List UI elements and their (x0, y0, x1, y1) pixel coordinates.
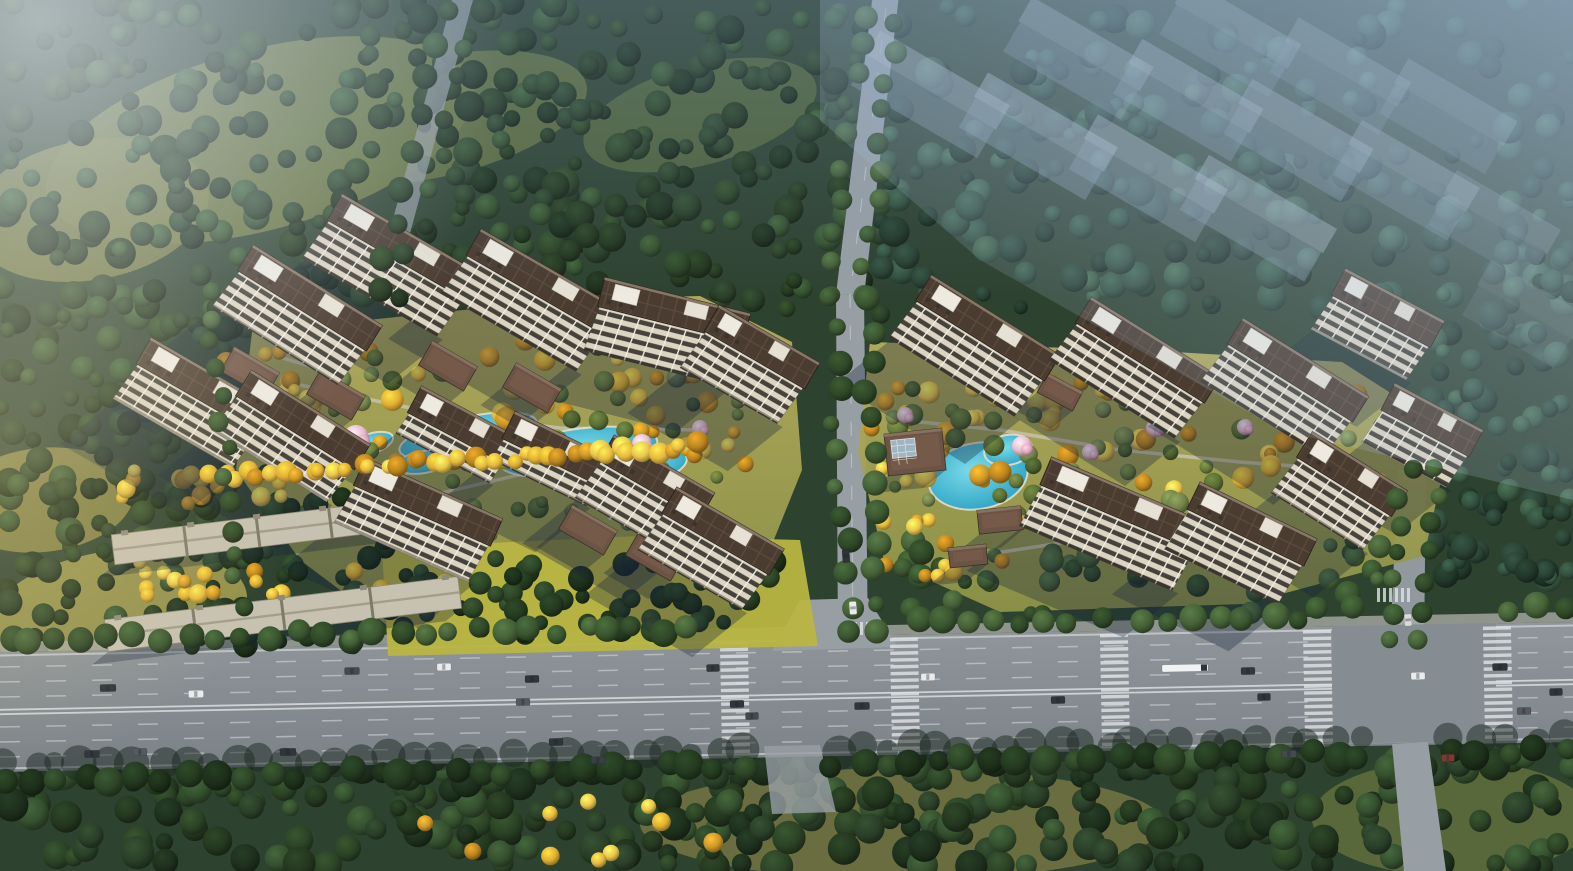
tree (687, 431, 709, 453)
tree (446, 758, 471, 783)
tree (829, 318, 846, 335)
vehicle (516, 698, 530, 705)
tree (1289, 611, 1307, 629)
tree (1523, 592, 1550, 619)
tree (1442, 559, 1457, 574)
tree (1262, 602, 1289, 629)
tree (772, 821, 805, 854)
tree (1154, 744, 1186, 776)
vehicle (730, 700, 744, 707)
tree (415, 624, 437, 646)
tree (907, 606, 933, 632)
tree (1130, 609, 1154, 633)
tree (78, 822, 104, 848)
tree (1335, 786, 1354, 805)
tree (1281, 781, 1299, 799)
tree (620, 616, 640, 636)
tree (1177, 799, 1195, 817)
tree (282, 800, 299, 817)
tree (521, 555, 542, 576)
tree (1194, 741, 1223, 770)
tree (863, 351, 886, 374)
vehicle (1257, 693, 1270, 700)
tree (547, 625, 566, 644)
vehicle (849, 601, 857, 614)
tree (310, 622, 336, 648)
tree (1032, 610, 1055, 633)
tree (1308, 825, 1339, 856)
clubhouse (884, 428, 946, 476)
tree (918, 569, 931, 582)
tree (283, 768, 305, 790)
tree (922, 493, 935, 506)
tree (989, 825, 1017, 853)
tree (486, 791, 514, 819)
tree (487, 586, 504, 603)
tree (1031, 745, 1061, 775)
tree (44, 769, 67, 792)
tree (1092, 839, 1118, 865)
tree (357, 618, 385, 646)
tree (861, 407, 882, 428)
tree (1469, 810, 1491, 832)
tree (18, 769, 45, 796)
tree (586, 811, 606, 831)
tree (1056, 613, 1076, 633)
tree (203, 826, 233, 856)
tree (462, 597, 483, 618)
tree (390, 800, 407, 817)
tree (989, 461, 1012, 484)
tree (486, 453, 503, 470)
tree (1158, 613, 1177, 632)
tree (1295, 793, 1323, 821)
tree (862, 470, 887, 495)
tree (929, 606, 957, 634)
tree (1451, 533, 1478, 560)
tree (504, 567, 522, 585)
tree (922, 513, 936, 527)
garden-pavilion (977, 506, 1023, 534)
garden-pavilion (948, 544, 988, 568)
tree (580, 794, 596, 810)
tree (1238, 745, 1267, 774)
tree (837, 620, 860, 643)
tree (827, 479, 843, 495)
tree (1109, 743, 1136, 770)
tree (257, 626, 282, 651)
tree (548, 448, 567, 467)
tree (1421, 541, 1440, 560)
tree (985, 783, 1015, 813)
tree (622, 759, 643, 780)
tree (180, 808, 206, 834)
tree (819, 756, 841, 778)
tree (716, 789, 743, 816)
tree (589, 411, 609, 431)
vehicle (706, 664, 719, 671)
tree (1000, 746, 1030, 776)
tree (515, 616, 540, 641)
vehicle (921, 673, 935, 680)
tree (1344, 746, 1368, 770)
tree (1459, 740, 1489, 770)
tree (918, 791, 939, 812)
tree (1383, 604, 1404, 625)
tree (942, 802, 972, 832)
tree (671, 438, 686, 453)
tree (1135, 474, 1153, 492)
tree (1502, 792, 1533, 823)
tree (392, 621, 416, 645)
tree (1146, 817, 1178, 849)
tree (412, 760, 437, 785)
vehicle (1411, 672, 1425, 679)
tree (1389, 544, 1405, 560)
tree (830, 506, 851, 527)
tree (1461, 491, 1480, 510)
tree (337, 463, 351, 477)
rendering-canvas (0, 0, 1573, 871)
crosswalk (1483, 626, 1513, 739)
tree (1021, 444, 1033, 456)
tree (456, 824, 476, 844)
tree (1530, 781, 1558, 809)
tree (1269, 820, 1299, 850)
tree (1301, 739, 1325, 763)
tree (1383, 569, 1401, 587)
tree (947, 743, 975, 771)
tree (616, 422, 634, 440)
tree (864, 619, 888, 643)
tree (490, 765, 512, 787)
tree (530, 759, 551, 780)
tree (1025, 458, 1042, 475)
tree (1386, 488, 1408, 510)
tree (1266, 744, 1296, 774)
tree (121, 762, 149, 790)
tree (652, 812, 671, 831)
tree (1009, 473, 1024, 488)
tree (1341, 595, 1365, 619)
tree (1515, 559, 1539, 583)
tree (1179, 604, 1207, 632)
tree (908, 830, 940, 862)
tree (231, 767, 255, 791)
tree (1363, 826, 1392, 855)
tree (828, 832, 861, 865)
vehicle (842, 549, 850, 562)
tree (1391, 516, 1411, 536)
tree (977, 747, 1004, 774)
tree (929, 751, 949, 771)
tree (642, 831, 663, 852)
tree (894, 803, 915, 824)
tree (622, 779, 646, 803)
vehicle (437, 663, 451, 670)
tree (1485, 509, 1502, 526)
tree (1381, 631, 1398, 648)
tree (438, 623, 457, 642)
tree (1547, 833, 1569, 855)
tree (833, 560, 857, 584)
tree (826, 439, 848, 461)
tree (852, 749, 880, 777)
tree (854, 814, 884, 844)
tree (1553, 503, 1571, 521)
tree (340, 756, 366, 782)
tree (417, 815, 433, 831)
tree (239, 793, 265, 819)
vehicle (280, 748, 296, 756)
tree (829, 376, 854, 401)
tree (1415, 573, 1434, 592)
vehicle (1241, 667, 1255, 674)
tree (895, 750, 922, 777)
tree (867, 531, 892, 556)
tree (1498, 602, 1518, 622)
tree (1408, 630, 1428, 650)
vehicle (745, 712, 758, 719)
tree (156, 833, 173, 850)
tree (1356, 793, 1381, 818)
tree (674, 615, 697, 638)
tree (540, 593, 564, 617)
tree (861, 556, 885, 580)
tree (541, 847, 560, 866)
tree (334, 783, 355, 804)
tree (1520, 735, 1547, 762)
tree (365, 818, 386, 839)
tree (703, 833, 723, 853)
tree (148, 770, 171, 793)
vehicle (591, 756, 605, 763)
tree (1500, 744, 1521, 765)
tree (176, 760, 204, 788)
tree (838, 527, 863, 552)
tree (863, 322, 886, 345)
tree (387, 456, 407, 476)
tree (262, 762, 286, 786)
tree (594, 616, 620, 642)
tree (1077, 744, 1106, 773)
vehicle (1051, 696, 1065, 703)
vehicle (525, 675, 539, 682)
tree (778, 300, 795, 317)
tree (464, 843, 481, 860)
tree (862, 776, 895, 809)
tree (852, 379, 877, 404)
tree (701, 758, 722, 779)
tree (650, 619, 678, 647)
tree (958, 611, 980, 633)
tree (383, 758, 415, 790)
tree (1306, 597, 1328, 619)
tree (1555, 529, 1572, 546)
aerial-site-rendering (0, 0, 1573, 871)
vehicle (1281, 750, 1296, 757)
tree (154, 798, 183, 827)
tree (1412, 602, 1433, 623)
tree (1420, 512, 1441, 533)
tree (685, 803, 705, 823)
tree (673, 749, 704, 780)
vehicle (1492, 663, 1507, 670)
vehicle (854, 702, 869, 709)
tree (969, 464, 991, 486)
tree (983, 610, 1004, 631)
tree (1011, 615, 1029, 633)
tree (710, 471, 723, 484)
vehicle (1517, 707, 1531, 714)
tree (50, 801, 82, 833)
vehicle (549, 738, 563, 745)
tree (542, 806, 557, 821)
tree (1208, 783, 1241, 816)
tree (750, 816, 775, 841)
tree (121, 836, 155, 870)
tree (865, 442, 887, 464)
tree (1081, 781, 1101, 801)
tree (556, 820, 576, 840)
tree (552, 787, 574, 809)
tree (734, 756, 758, 780)
vehicle (1549, 688, 1562, 695)
tree (1229, 607, 1253, 631)
tree (310, 464, 324, 478)
tree (202, 760, 232, 790)
tree (334, 835, 361, 862)
tree (114, 796, 142, 824)
truck (1162, 664, 1208, 672)
tree (94, 767, 124, 797)
vehicle (344, 667, 359, 674)
tree (1504, 844, 1532, 871)
tree (828, 351, 853, 376)
tree (305, 785, 328, 808)
tree (641, 799, 656, 814)
tree (1370, 572, 1384, 586)
crosswalk (1303, 630, 1333, 743)
vehicle (133, 748, 147, 755)
tree (1043, 819, 1065, 841)
tree (563, 410, 581, 428)
tree (381, 388, 404, 411)
skylight (891, 438, 917, 458)
tree (591, 852, 606, 867)
vehicle (1404, 614, 1412, 626)
tree (288, 619, 311, 642)
tree (493, 618, 520, 645)
tree (865, 500, 889, 524)
tree (909, 539, 935, 565)
tree (449, 450, 466, 467)
tree (410, 450, 427, 467)
tree (487, 550, 504, 567)
tree (311, 762, 332, 783)
vehicle (1441, 754, 1454, 761)
tree (360, 459, 374, 473)
tree (868, 596, 884, 612)
tree (1014, 300, 1028, 314)
tree (1092, 607, 1113, 628)
tree (823, 416, 839, 432)
tree (906, 518, 923, 535)
tree (1431, 488, 1448, 505)
tree (469, 617, 490, 638)
tree (992, 488, 1007, 503)
